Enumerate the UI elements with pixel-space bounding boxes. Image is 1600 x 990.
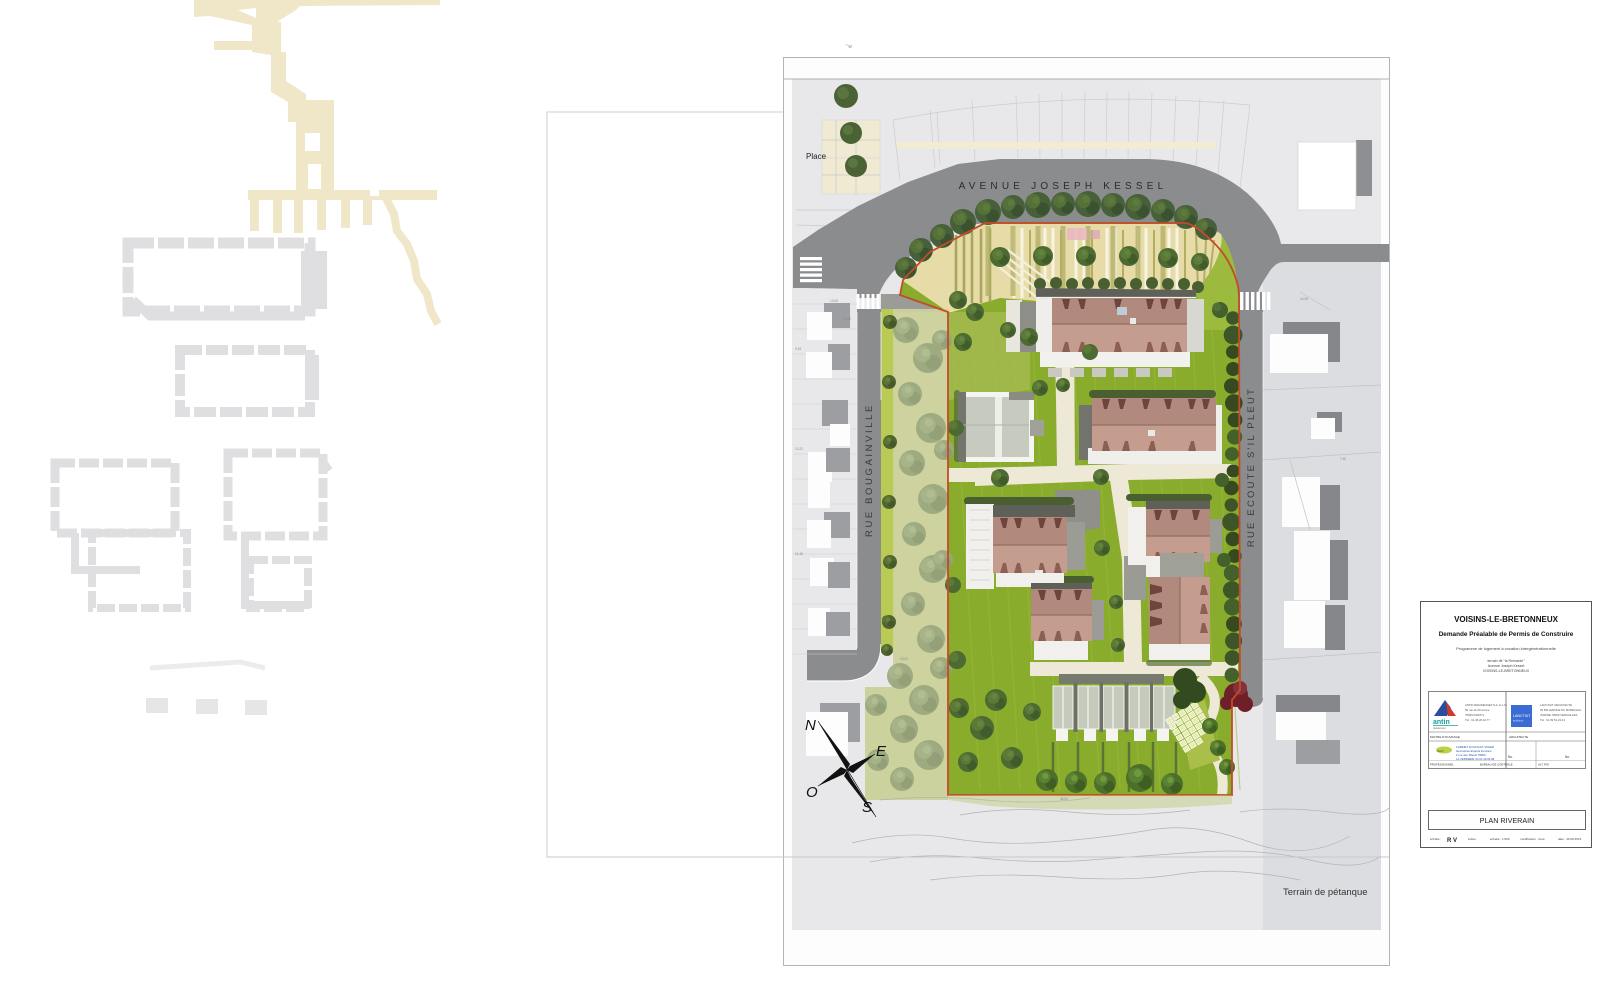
svg-text:BUREAU DE CONTROLE: BUREAU DE CONTROLE xyxy=(1480,763,1513,767)
svg-text:échelle : 1:500: échelle : 1:500 xyxy=(1490,837,1510,841)
svg-text:N: N xyxy=(805,717,816,734)
svg-text:ALT. PIG: ALT. PIG xyxy=(1538,763,1549,767)
svg-text:No.: No. xyxy=(1565,755,1570,759)
svg-text:échelle :: échelle : xyxy=(1430,837,1441,841)
svg-text:VOISINS-LE-BRETONNEUX: VOISINS-LE-BRETONNEUX xyxy=(1454,615,1559,624)
svg-text:No.: No. xyxy=(1508,755,1513,759)
svg-text:PLAN RIVERAIN: PLAN RIVERAIN xyxy=(1480,816,1535,825)
svg-text:E: E xyxy=(876,743,887,760)
svg-text:ARCHITECTE: ARCHITECTE xyxy=(1509,735,1528,739)
svg-text:13.05: 13.05 xyxy=(830,299,838,303)
svg-text:12.40: 12.40 xyxy=(1200,212,1208,216)
svg-text:Terrain de pétanque: Terrain de pétanque xyxy=(1283,887,1368,898)
svg-text:RUE BOUGAINVILLE: RUE BOUGAINVILLE xyxy=(864,403,875,537)
svg-text:14.35: 14.35 xyxy=(1300,297,1308,301)
svg-text:25.80: 25.80 xyxy=(843,317,851,321)
svg-text:11.48: 11.48 xyxy=(795,552,803,556)
svg-text:indice :: indice : xyxy=(1468,837,1478,841)
svg-text:75009 PARIS 9: 75009 PARIS 9 xyxy=(1465,713,1485,717)
svg-text:résidences: résidences xyxy=(1433,726,1446,730)
svg-text:Avenue Joseph Kessel: Avenue Joseph Kessel xyxy=(1488,664,1525,668)
svg-text:59 rue de Provence: 59 rue de Provence xyxy=(1465,708,1490,712)
svg-text:PROFESSIONNEL: PROFESSIONNEL xyxy=(1430,763,1454,767)
svg-text:terrain dit "la Remarde": terrain dit "la Remarde" xyxy=(1487,659,1525,663)
svg-text:antin: antin xyxy=(1433,719,1450,726)
svg-text:S: S xyxy=(862,799,872,816)
svg-text:Place: Place xyxy=(806,152,827,161)
svg-text:⌜w: ⌜w xyxy=(846,44,852,50)
svg-text:MAITRE D'OUVRAGE: MAITRE D'OUVRAGE xyxy=(1430,735,1460,739)
svg-text:10.22: 10.22 xyxy=(795,447,803,451)
svg-text:RUE ECOUTE S'IL PLEUT: RUE ECOUTE S'IL PLEUT xyxy=(1246,387,1257,547)
svg-text:LANCTUIT: LANCTUIT xyxy=(1513,714,1531,718)
svg-text:Tél : 01.39.51.23.41: Tél : 01.39.51.23.41 xyxy=(1540,718,1565,722)
svg-text:JOFFRE 78000 VERSAILLES: JOFFRE 78000 VERSAILLES xyxy=(1540,713,1577,717)
svg-text:ANTIN RESIDENCES S.A. H.L.M.: ANTIN RESIDENCES S.A. H.L.M. xyxy=(1465,703,1508,707)
svg-text:Programme de logement à vocati: Programme de logement à vocation intergé… xyxy=(1456,646,1556,651)
svg-text:modification : Aout: modification : Aout xyxy=(1520,837,1545,841)
svg-text:9.15: 9.15 xyxy=(795,347,801,351)
svg-text:GEO: GEO xyxy=(1437,749,1444,753)
svg-text:date : 26.08.2015: date : 26.08.2015 xyxy=(1558,837,1582,841)
svg-text:O: O xyxy=(806,784,818,801)
svg-text:Demande Préalable de Permis de: Demande Préalable de Permis de Construir… xyxy=(1439,631,1574,638)
svg-text:8.20: 8.20 xyxy=(1246,327,1252,331)
svg-text:Tél : 01.45.26.42.77: Tél : 01.45.26.42.77 xyxy=(1465,718,1490,722)
svg-text:18.00: 18.00 xyxy=(900,657,908,661)
svg-text:25 BIS AVENUE DU MARECHAL: 25 BIS AVENUE DU MARECHAL xyxy=(1540,708,1582,712)
svg-text:15.06: 15.06 xyxy=(960,202,968,206)
svg-text:36.50: 36.50 xyxy=(1060,797,1068,801)
svg-text:VOISINS-LE-BRETONNEUX: VOISINS-LE-BRETONNEUX xyxy=(1483,669,1530,673)
svg-text:LA VERRIERE Tel 01.30.05.08: LA VERRIERE Tel 01.30.05.08 xyxy=(1456,757,1495,761)
svg-text:LANCTUIT ARCHITECTE: LANCTUIT ARCHITECTE xyxy=(1540,703,1572,707)
svg-text:AVENUE JOSEPH KESSEL: AVENUE JOSEPH KESSEL xyxy=(959,181,1168,192)
svg-text:architecte: architecte xyxy=(1513,720,1524,723)
svg-text:R V: R V xyxy=(1447,838,1457,844)
svg-text:7.60: 7.60 xyxy=(1340,457,1346,461)
